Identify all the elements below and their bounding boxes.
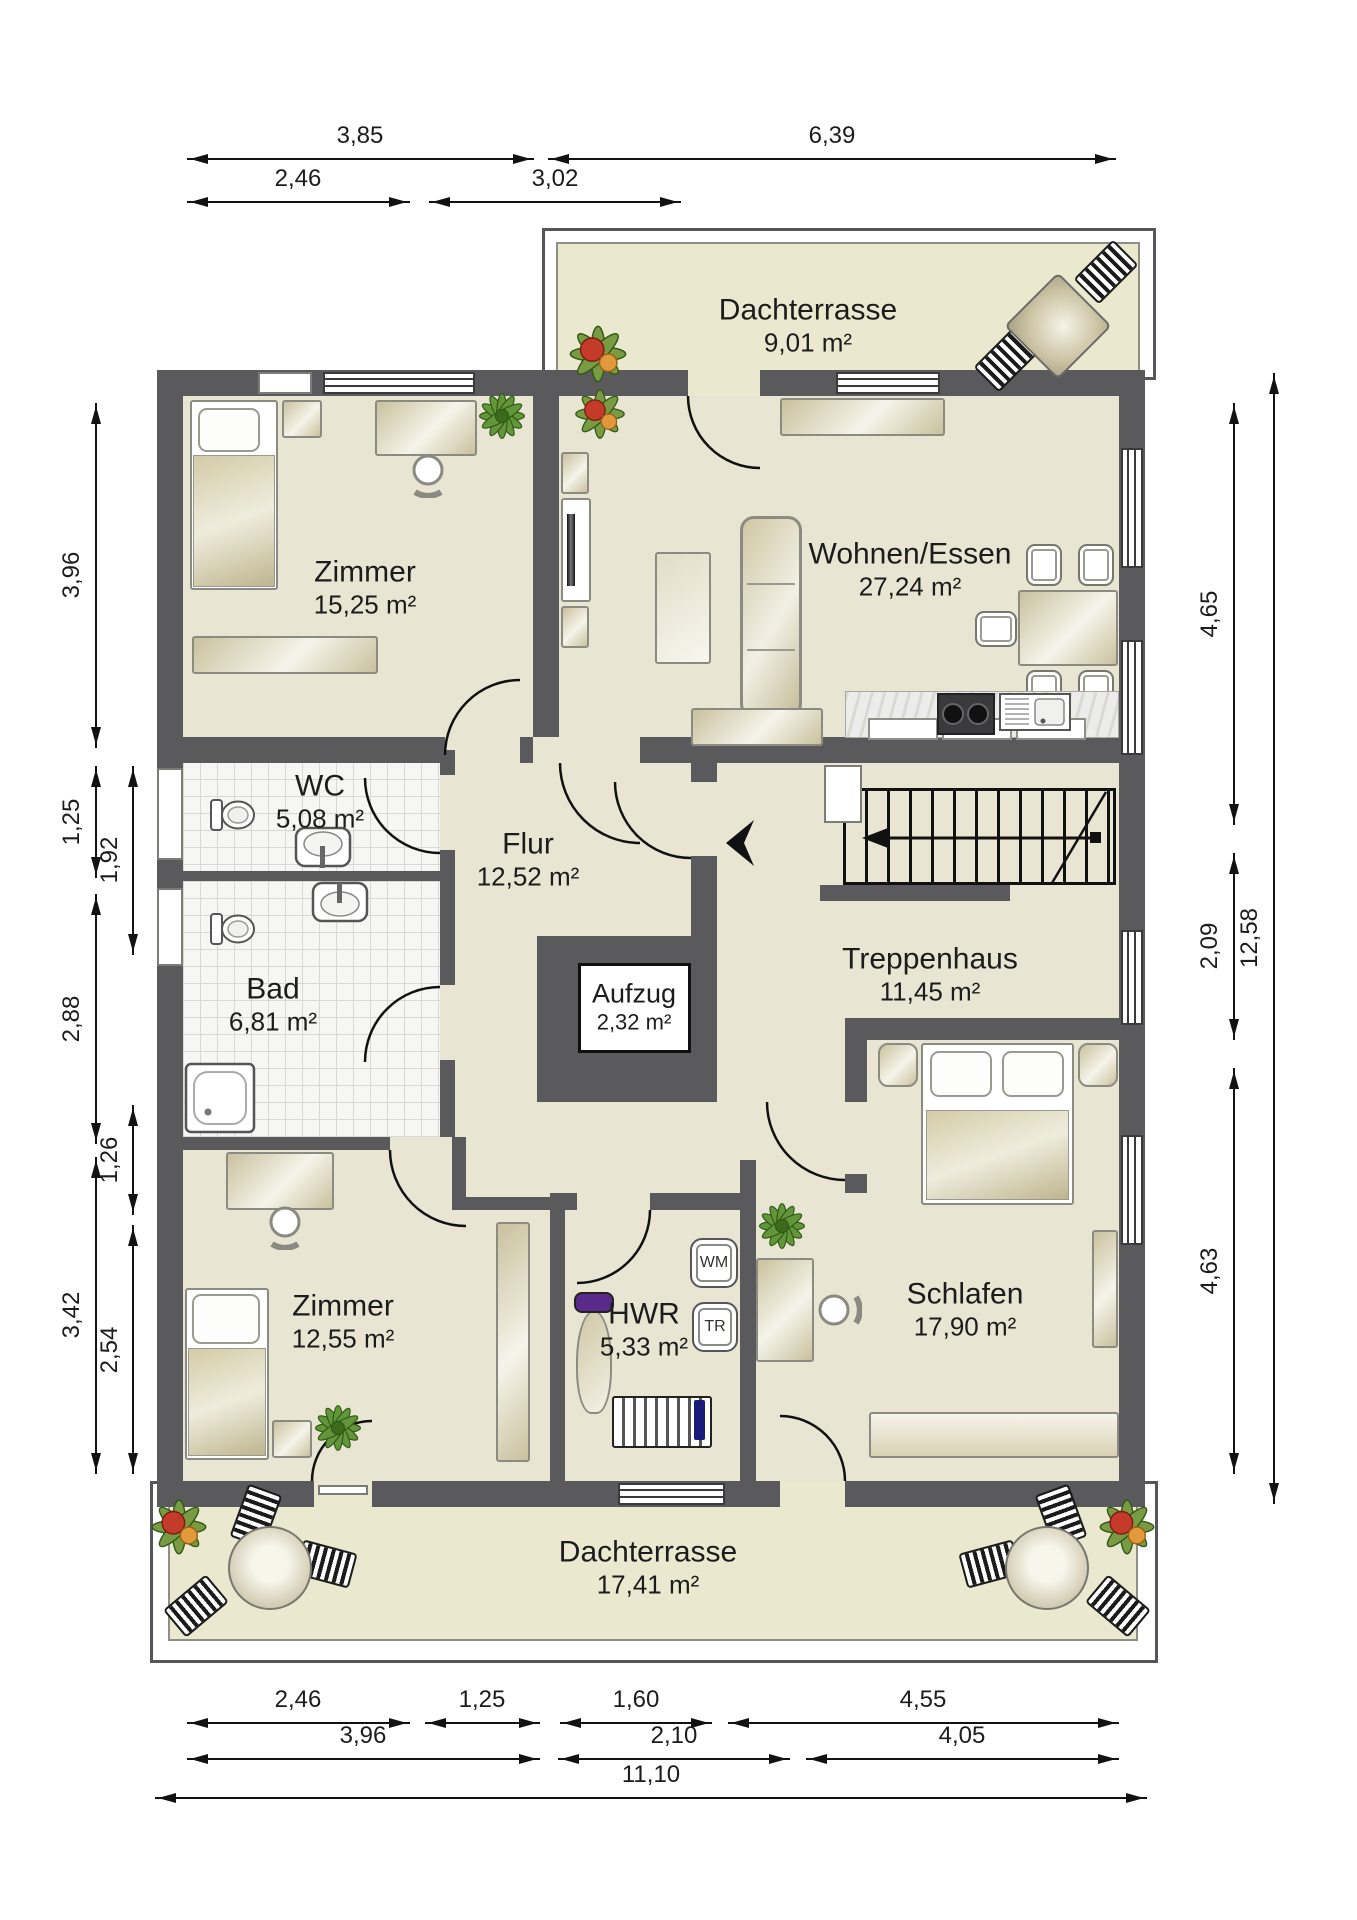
- shaft-bad: [157, 888, 183, 966]
- pillow-zimmer-sw: [192, 1294, 260, 1344]
- wall-schlafen-west-a: [845, 1040, 867, 1102]
- dim-top-639: [548, 158, 1116, 160]
- dim-top-385: [187, 158, 534, 160]
- window-zimmer-nw: [323, 372, 475, 394]
- wall-bad-east-b: [440, 1060, 455, 1137]
- dim-label: 2,46: [275, 1686, 322, 1714]
- label-hwr: HWR 5,33 m²: [600, 1298, 688, 1363]
- wall-hwr-north-a: [550, 1193, 577, 1210]
- wall-zimmer-nw-south: [183, 737, 445, 763]
- window-wohnen-north: [836, 372, 940, 394]
- dim-right-465: [1233, 403, 1235, 825]
- coffee-table: [655, 552, 711, 664]
- dim-label: 3,96: [58, 552, 86, 599]
- desk-schlafen: [756, 1258, 814, 1362]
- dim-left-396: [95, 403, 97, 748]
- window-wohnen-east-1: [1121, 448, 1143, 568]
- dim-left-192: [132, 766, 134, 955]
- dim-label: 2,88: [58, 996, 86, 1043]
- cabinet-tv-top: [561, 452, 589, 494]
- dim-label: 1,25: [459, 1686, 506, 1714]
- window-schlafen: [1121, 1135, 1143, 1245]
- blanket-schlafen: [926, 1110, 1069, 1200]
- dim-label: 4,55: [900, 1686, 947, 1714]
- sideboard-zimmer-nw: [192, 636, 378, 674]
- wall-schlafen-west-b: [845, 1174, 867, 1193]
- dim-bottom-1110: [155, 1797, 1147, 1799]
- dim-bottom-210: [558, 1758, 790, 1760]
- dim-label: 4,05: [939, 1722, 986, 1750]
- bed-bench-right: [1078, 1043, 1118, 1087]
- threshold-zimmer-sw: [318, 1485, 368, 1495]
- dim-label: 2,09: [1196, 923, 1224, 970]
- wall-hwr-north-b: [650, 1193, 756, 1210]
- kitchen-cabinet-3: [1016, 718, 1086, 740]
- wall-hwr-west: [550, 1210, 565, 1481]
- terrace-bottom-table-left: [228, 1526, 312, 1610]
- label-dachterrasse-bottom: Dachterrasse 17,41 m²: [559, 1536, 737, 1601]
- door-opening-terrace-top: [688, 370, 760, 396]
- nightstand-zimmer-sw: [272, 1420, 312, 1458]
- dim-label: 2,54: [96, 1327, 124, 1374]
- shaft-north: [258, 372, 312, 394]
- wall-bad-east-a: [440, 881, 455, 985]
- label-zimmer-nw: Zimmer 15,25 m²: [314, 556, 417, 621]
- kitchen-cabinet-1: [868, 718, 938, 740]
- label-schlafen: Schlafen 17,90 m²: [907, 1278, 1024, 1343]
- dryer: TR: [692, 1302, 738, 1352]
- label-dachterrasse-top: Dachterrasse 9,01 m²: [719, 294, 897, 359]
- dim-label: 2,46: [275, 165, 322, 193]
- door-opening-terrace-schlafen: [780, 1481, 845, 1507]
- wardrobe-zimmer-sw: [496, 1222, 530, 1462]
- dining-chair-1: [1026, 544, 1062, 586]
- window-hwr: [618, 1483, 725, 1505]
- dim-label: 4,65: [1196, 591, 1224, 638]
- dim-left-126: [132, 1105, 134, 1215]
- shaft-treppenhaus: [824, 765, 862, 823]
- label-zimmer-sw: Zimmer 12,55 m²: [292, 1290, 395, 1355]
- dryer-label: TR: [704, 1318, 725, 1336]
- blanket-zimmer-nw: [193, 455, 275, 587]
- dim-label: 12,58: [1236, 908, 1264, 968]
- dim-top-246: [187, 201, 410, 203]
- window-wohnen-east-2: [1121, 640, 1143, 755]
- wall-flur-sw-b: [452, 1197, 565, 1210]
- laundry-item: [694, 1400, 705, 1440]
- sofa: [740, 516, 802, 718]
- wall-treppenhaus-west-b: [691, 856, 717, 936]
- dim-label: 1,60: [613, 1686, 660, 1714]
- pillow-schlafen-1: [930, 1051, 992, 1097]
- dim-label: 3,96: [340, 1722, 387, 1750]
- blanket-zimmer-sw: [188, 1348, 266, 1456]
- sideboard-wohnen-north: [780, 398, 945, 436]
- label-wc: WC 5,08 m²: [276, 770, 364, 835]
- staircase: [843, 788, 1116, 885]
- dim-label: 2,10: [651, 1722, 698, 1750]
- wall-wc-bad: [183, 871, 451, 881]
- dim-label: 3,42: [58, 1292, 86, 1339]
- wall-treppenhaus-schlafen: [845, 1018, 1119, 1040]
- nightstand-zimmer-nw: [282, 400, 322, 438]
- dim-label: 6,39: [809, 122, 856, 150]
- dim-bottom-455: [728, 1722, 1119, 1724]
- sideboard-fl: [691, 708, 823, 746]
- label-treppenhaus: Treppenhaus 11,45 m²: [842, 943, 1018, 1008]
- dim-label: 3,02: [532, 165, 579, 193]
- shaft-wc: [157, 768, 183, 860]
- desk-zimmer-nw: [375, 400, 477, 456]
- label-bad: Bad 6,81 m²: [229, 973, 317, 1038]
- kitchen-cabinet-2: [942, 718, 1012, 740]
- dim-right-463: [1233, 1068, 1235, 1474]
- dresser-schlafen: [869, 1412, 1119, 1458]
- dim-label: 11,10: [622, 1761, 680, 1789]
- wall-zimmer-wohnen: [533, 396, 559, 737]
- dim-left-342: [95, 1157, 97, 1474]
- dim-left-288: [95, 894, 97, 1144]
- washing-machine: WM: [690, 1238, 738, 1288]
- bed-bench-left: [878, 1043, 918, 1087]
- dim-label: 3,85: [337, 122, 384, 150]
- pillow-zimmer-nw: [198, 408, 260, 452]
- dim-right-209: [1233, 853, 1235, 1040]
- label-aufzug: Aufzug 2,32 m²: [592, 979, 676, 1036]
- dim-label: 4,63: [1196, 1248, 1224, 1295]
- tv-screen: [567, 514, 575, 586]
- dim-label: 1,25: [58, 799, 86, 846]
- dim-label: 1,26: [96, 1137, 124, 1184]
- label-flur: Flur 12,52 m²: [477, 828, 580, 893]
- wardrobe-schlafen: [1092, 1230, 1118, 1348]
- dim-right-1258: [1273, 373, 1275, 1504]
- floor-plan: WM TR: [0, 0, 1357, 1920]
- label-wohnen-essen: Wohnen/Essen 27,24 m²: [809, 538, 1012, 603]
- dim-label: 1,92: [96, 837, 124, 884]
- wall-bad-south: [183, 1137, 390, 1150]
- dim-top-302: [429, 201, 681, 203]
- dining-chair-2: [1078, 544, 1114, 586]
- dim-bottom-396: [187, 1758, 540, 1760]
- dim-left-254: [132, 1225, 134, 1474]
- pillow-schlafen-2: [1002, 1051, 1064, 1097]
- desk-zimmer-sw: [226, 1152, 334, 1210]
- terrace-bottom-table-right: [1005, 1526, 1089, 1610]
- window-treppenhaus: [1121, 930, 1143, 1025]
- wall-wc-east-a: [440, 750, 455, 775]
- washer-label: WM: [700, 1254, 728, 1272]
- wall-stair-rail: [820, 885, 1010, 901]
- dim-bottom-125: [425, 1722, 540, 1724]
- cabinet-tv-bottom: [561, 606, 589, 648]
- dining-chair-head: [975, 611, 1017, 647]
- dining-table: [1018, 590, 1118, 666]
- dim-bottom-405: [806, 1758, 1119, 1760]
- tv-lowboard: [561, 498, 591, 602]
- wall-stub: [520, 737, 533, 763]
- wall-treppenhaus-west-a: [691, 763, 717, 782]
